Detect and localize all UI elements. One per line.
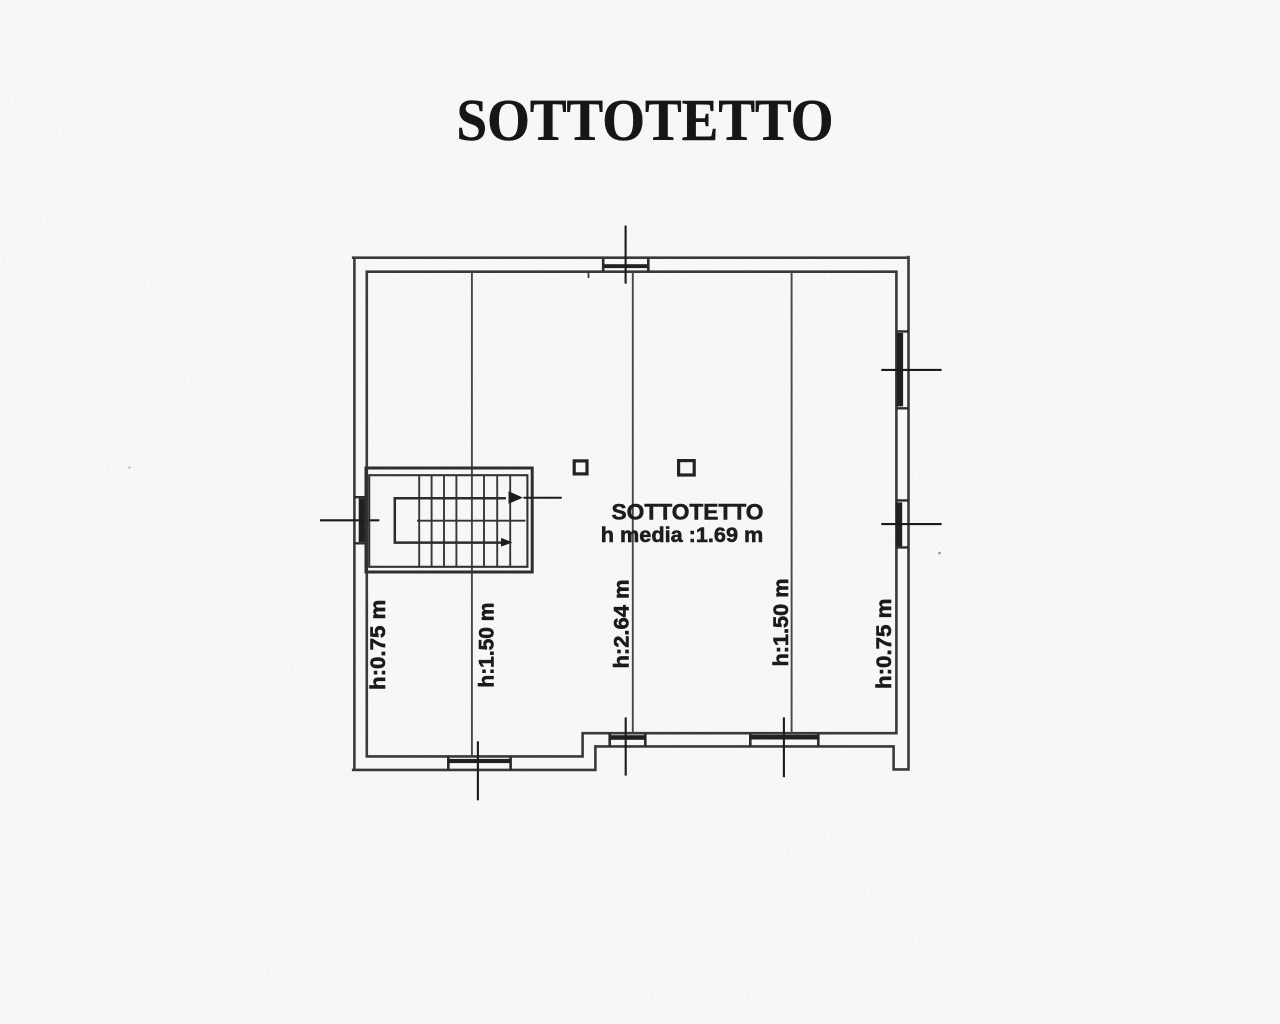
svg-text:h media :1.69 m: h media :1.69 m: [601, 523, 764, 547]
svg-text:SOTTOTETTO: SOTTOTETTO: [457, 87, 834, 153]
svg-text:h:1.50 m: h:1.50 m: [474, 603, 498, 688]
svg-text:SOTTOTETTO: SOTTOTETTO: [612, 500, 764, 525]
svg-text:h:0.75 m: h:0.75 m: [872, 599, 896, 690]
svg-text:h:0.75 m: h:0.75 m: [366, 600, 390, 690]
svg-text:h:1.50 m: h:1.50 m: [769, 579, 793, 667]
svg-text:h:2.64 m: h:2.64 m: [609, 580, 633, 669]
